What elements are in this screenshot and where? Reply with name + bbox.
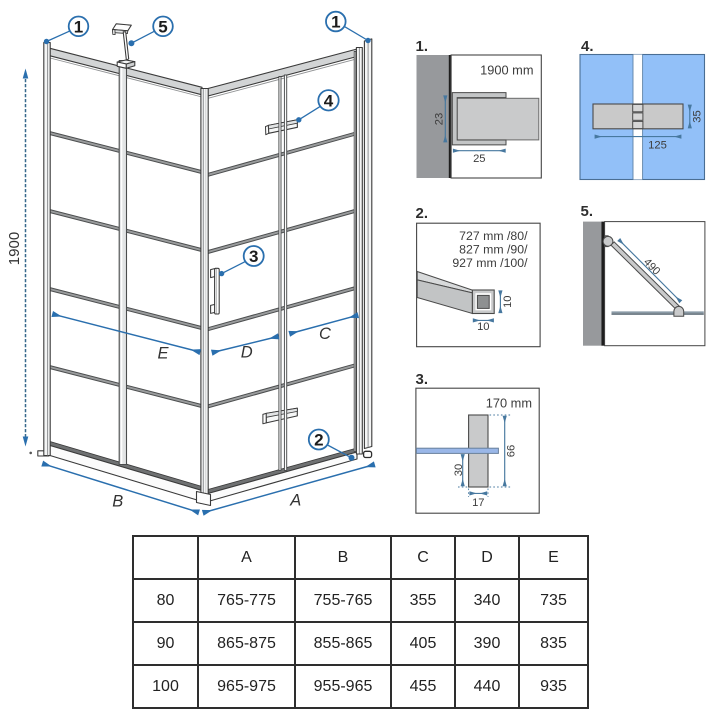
svg-text:4.: 4. <box>581 38 594 55</box>
svg-text:1.: 1. <box>416 38 429 55</box>
svg-text:C: C <box>319 325 331 343</box>
svg-text:3: 3 <box>249 247 258 266</box>
svg-text:125: 125 <box>648 140 667 152</box>
svg-text:4: 4 <box>324 91 334 110</box>
svg-text:35: 35 <box>692 110 704 122</box>
svg-text:2: 2 <box>314 431 323 450</box>
svg-text:10: 10 <box>502 295 514 307</box>
svg-text:1900: 1900 <box>6 232 23 265</box>
svg-text:D: D <box>241 344 253 362</box>
svg-text:927 mm /100/: 927 mm /100/ <box>452 256 528 270</box>
svg-text:1: 1 <box>331 13 340 32</box>
svg-text:170 mm: 170 mm <box>486 396 532 411</box>
svg-text:1900 mm: 1900 mm <box>480 63 533 78</box>
svg-text:66: 66 <box>505 445 517 457</box>
svg-text:A: A <box>289 492 301 510</box>
svg-text:3.: 3. <box>416 371 429 388</box>
svg-text:17: 17 <box>472 497 484 509</box>
svg-text:B: B <box>112 492 123 510</box>
svg-text:E: E <box>157 345 169 363</box>
svg-text:727 mm /80/: 727 mm /80/ <box>459 229 528 243</box>
svg-text:10: 10 <box>477 321 489 333</box>
svg-text:30: 30 <box>453 464 465 476</box>
svg-text:827 mm /90/: 827 mm /90/ <box>459 242 528 256</box>
svg-text:2.: 2. <box>416 205 429 222</box>
svg-text:5.: 5. <box>581 203 594 220</box>
svg-text:25: 25 <box>473 153 485 165</box>
svg-text:1: 1 <box>74 17 83 36</box>
svg-text:23: 23 <box>434 113 446 125</box>
svg-text:5: 5 <box>158 17 167 36</box>
